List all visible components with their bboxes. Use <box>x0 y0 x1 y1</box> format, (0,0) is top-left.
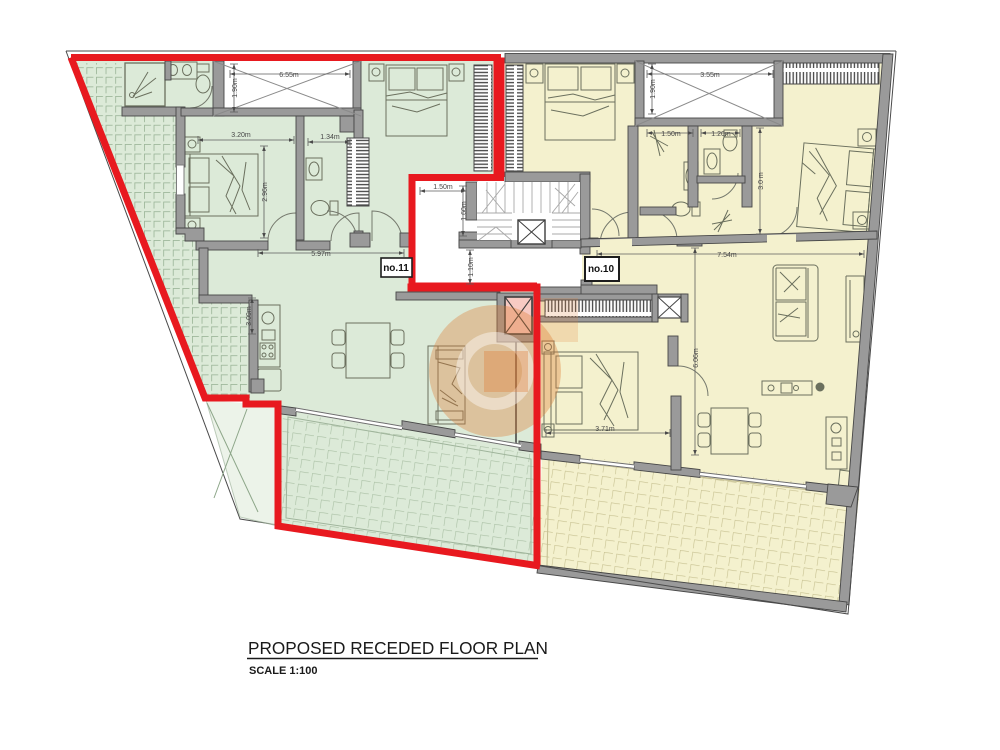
svg-text:3.55m: 3.55m <box>700 72 720 79</box>
svg-text:7.54m: 7.54m <box>717 252 737 259</box>
svg-text:3.20m: 3.20m <box>231 132 251 139</box>
svg-text:5.97m: 5.97m <box>311 251 331 258</box>
svg-text:1.50m: 1.50m <box>661 131 681 138</box>
svg-text:1.90m: 1.90m <box>650 79 657 99</box>
svg-text:1.34m: 1.34m <box>320 134 340 141</box>
svg-text:no.11: no.11 <box>383 263 409 274</box>
svg-text:3.71m: 3.71m <box>595 426 615 433</box>
svg-text:3.0 m: 3.0 m <box>758 172 765 190</box>
svg-text:1.10m: 1.10m <box>468 257 475 277</box>
svg-text:1.90m: 1.90m <box>232 78 239 98</box>
svg-text:1.60m: 1.60m <box>461 201 468 221</box>
svg-text:no.10: no.10 <box>588 264 615 275</box>
svg-text:6.06m: 6.06m <box>693 348 700 368</box>
svg-text:1.50m: 1.50m <box>433 184 453 191</box>
svg-text:1.20m: 1.20m <box>711 131 731 138</box>
svg-text:3.09m: 3.09m <box>246 306 253 326</box>
svg-text:6.55m: 6.55m <box>279 72 299 79</box>
svg-text:SCALE 1:100: SCALE 1:100 <box>249 665 317 677</box>
svg-text:PROPOSED RECEDED FLOOR PLAN: PROPOSED RECEDED FLOOR PLAN <box>248 638 548 658</box>
svg-text:2.96m: 2.96m <box>262 182 269 202</box>
